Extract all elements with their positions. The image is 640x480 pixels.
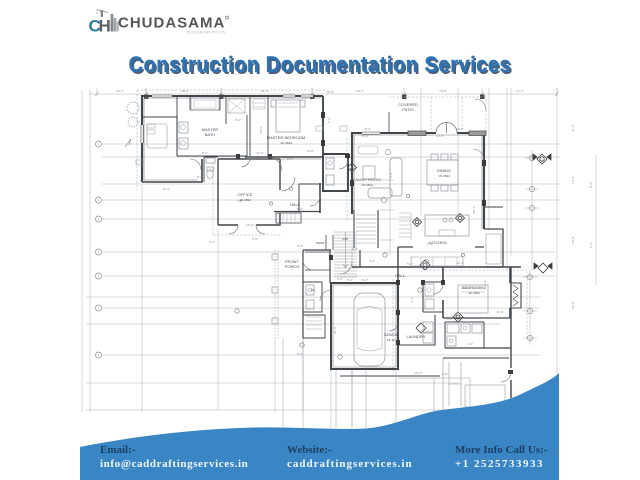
svg-text:10'-3694: 10'-3694 [361, 183, 373, 187]
svg-text:2: 2 [98, 142, 100, 146]
svg-text:21'-6": 21'-6" [333, 326, 337, 334]
svg-text:8'-0": 8'-0" [589, 182, 593, 188]
svg-text:HALL: HALL [290, 202, 301, 207]
svg-text:6'-6": 6'-6" [442, 372, 448, 376]
svg-text:DINING: DINING [437, 168, 451, 173]
svg-text:CAB: CAB [342, 237, 348, 241]
svg-text:3: 3 [98, 198, 100, 202]
svg-text:5'-8": 5'-8" [297, 244, 303, 248]
svg-text:18'-6": 18'-6" [181, 89, 189, 93]
svg-text:15'-8": 15'-8" [306, 149, 314, 153]
svg-text:12'-2": 12'-2" [256, 151, 264, 155]
svg-text:8'-4": 8'-4" [365, 127, 371, 131]
svg-text:5'-4": 5'-4" [235, 118, 241, 122]
svg-text:19'-8": 19'-8" [439, 89, 447, 93]
svg-text:17'-2": 17'-2" [516, 89, 524, 93]
svg-text:10'-3694: 10'-3694 [438, 174, 450, 178]
svg-text:3'-0": 3'-0" [369, 259, 375, 263]
svg-text:9'-8": 9'-8" [297, 352, 303, 356]
svg-text:5'-2": 5'-2" [407, 262, 413, 266]
svg-text:PWDR: PWDR [316, 241, 325, 245]
svg-text:PORCH: PORCH [285, 264, 300, 269]
svg-text:12'-6": 12'-6" [436, 134, 444, 138]
svg-text:5: 5 [98, 250, 100, 254]
svg-text:20'-0": 20'-0" [356, 89, 364, 93]
svg-text:12'-4": 12'-4" [456, 261, 464, 265]
svg-text:10'-3694: 10'-3694 [280, 141, 292, 145]
svg-text:10'-36: 10'-36 [387, 338, 396, 342]
svg-text:9'-0": 9'-0" [362, 278, 368, 282]
svg-text:OUTSOURCING PVT. LTD.: OUTSOURCING PVT. LTD. [187, 31, 226, 35]
svg-text:9'-6": 9'-6" [389, 172, 393, 178]
svg-text:3'-6": 3'-6" [252, 237, 258, 241]
svg-text:HALL: HALL [395, 273, 406, 278]
svg-text:6: 6 [98, 274, 100, 278]
svg-text:7'-2": 7'-2" [327, 117, 331, 123]
svg-text:21'-4": 21'-4" [261, 89, 269, 93]
svg-text:BEDROOM 2: BEDROOM 2 [462, 285, 487, 290]
svg-text:15'-4": 15'-4" [472, 206, 476, 214]
svg-text:10'-3694: 10'-3694 [239, 198, 251, 202]
svg-text:WC: WC [311, 288, 316, 292]
svg-text:10'-3694: 10'-3694 [468, 291, 480, 295]
svg-text:CHUDASAMA: CHUDASAMA [118, 15, 225, 32]
svg-text:9'-2": 9'-2" [202, 151, 208, 155]
svg-text:20'-4": 20'-4" [414, 371, 422, 375]
svg-text:13'-0": 13'-0" [259, 126, 263, 134]
svg-text:LAUNDRY: LAUNDRY [406, 334, 425, 339]
svg-text:14'-6": 14'-6" [326, 90, 334, 94]
svg-text:2'-8": 2'-8" [287, 157, 293, 161]
svg-text:18'-0": 18'-0" [361, 134, 369, 138]
svg-text:4'-4": 4'-4" [467, 342, 473, 346]
svg-text:BATH: BATH [205, 132, 215, 137]
svg-text:8'-0": 8'-0" [197, 175, 203, 179]
svg-text:11'-4": 11'-4" [162, 187, 169, 191]
svg-text:FAMILY ROOM: FAMILY ROOM [353, 177, 380, 182]
svg-text:10'-8": 10'-8" [571, 236, 575, 244]
svg-text:KITCHEN: KITCHEN [429, 240, 447, 245]
svg-text:4: 4 [98, 217, 100, 221]
svg-text:GARAGE: GARAGE [384, 333, 399, 337]
svg-text:10'-0": 10'-0" [246, 223, 254, 227]
svg-text:6'-4": 6'-4" [589, 242, 593, 248]
svg-text:8'-2": 8'-2" [447, 317, 453, 321]
svg-text:16'-0": 16'-0" [456, 127, 464, 131]
svg-text:H: H [99, 17, 111, 36]
svg-text:7: 7 [98, 306, 100, 310]
svg-text:13'-2": 13'-2" [571, 176, 575, 184]
svg-text:OFFICE: OFFICE [238, 192, 253, 197]
svg-text:11'-2": 11'-2" [496, 310, 503, 314]
svg-text:24'-0": 24'-0" [116, 89, 124, 93]
svg-text:6'-0": 6'-0" [337, 277, 343, 281]
svg-text:8: 8 [98, 353, 100, 357]
svg-text:11'-6": 11'-6" [571, 124, 575, 131]
svg-text:4'-8": 4'-8" [352, 247, 358, 251]
svg-text:MASTER BEDROOM: MASTER BEDROOM [267, 135, 305, 140]
svg-text:7'-0": 7'-0" [410, 297, 414, 303]
svg-text:14'-0": 14'-0" [571, 301, 575, 309]
svg-text:6'-2": 6'-2" [209, 240, 215, 244]
svg-text:6'-2": 6'-2" [297, 207, 303, 211]
svg-text:PATIO: PATIO [402, 107, 413, 112]
svg-text:5'-6": 5'-6" [347, 278, 353, 282]
